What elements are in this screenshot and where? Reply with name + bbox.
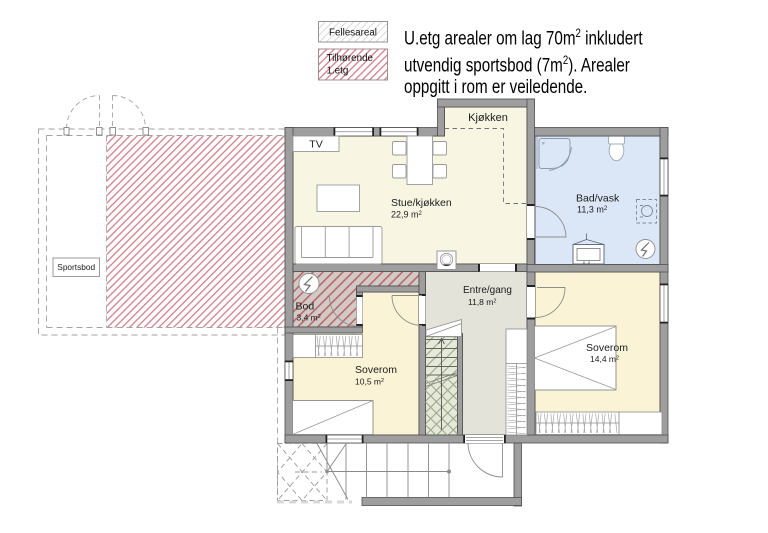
svg-text:Soverom: Soverom [586,342,628,354]
svg-text:Sportsbod: Sportsbod [57,262,95,272]
svg-text:Fellesareal: Fellesareal [329,28,377,39]
svg-text:14,4 m2: 14,4 m2 [590,354,619,364]
svg-text:Entre/gang: Entre/gang [463,285,512,296]
svg-text:Soverom: Soverom [355,364,397,376]
svg-text:11,3 m2: 11,3 m2 [577,205,608,215]
svg-text:TV: TV [309,139,322,151]
svg-text:Stue/kjøkken: Stue/kjøkken [391,197,452,209]
svg-text:10,5 m2: 10,5 m2 [355,377,384,387]
svg-text:Tilhørende: Tilhørende [327,53,374,64]
svg-text:3,4 m2: 3,4 m2 [297,313,321,323]
svg-text:Bod: Bod [296,301,315,313]
svg-text:22,9 m2: 22,9 m2 [391,210,423,220]
svg-text:11,8 m2: 11,8 m2 [468,297,496,307]
svg-text:Kjøkken: Kjøkken [468,112,508,124]
svg-text:1.etg: 1.etg [327,66,349,77]
svg-text:Bad/vask: Bad/vask [576,193,620,205]
